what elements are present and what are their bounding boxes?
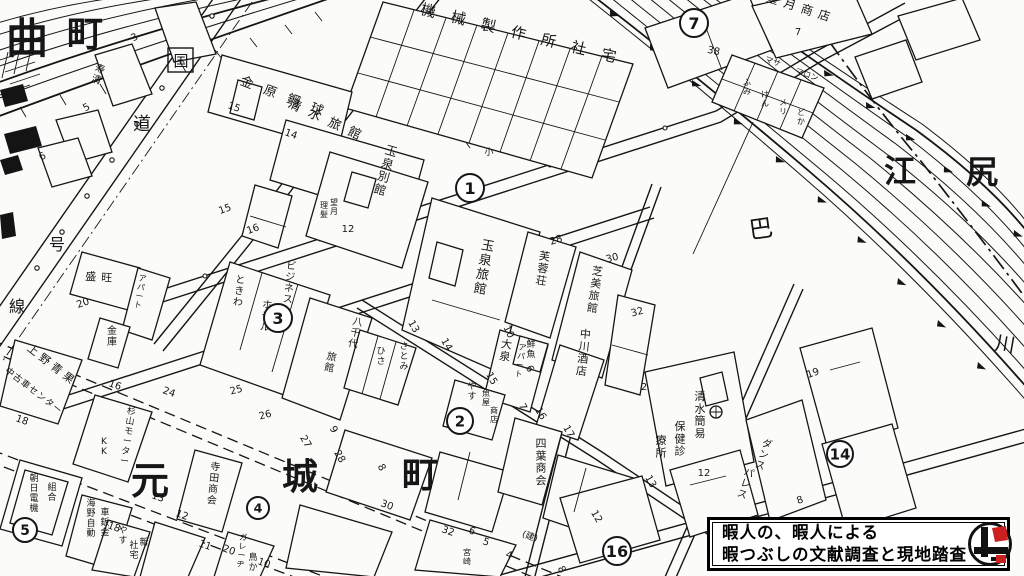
- circled-number-2: 2: [447, 408, 473, 434]
- map-label: メリ: [779, 98, 787, 116]
- map-canvas: 曲町江尻元城町巴川国道号線機械製作所社宅金原鋼球清水旅館寿清望月理髪玉泉別館玉泉…: [0, 0, 1024, 576]
- building-outline: [95, 44, 152, 106]
- map-label: 理髪: [320, 201, 328, 219]
- map-label: けん: [761, 90, 769, 108]
- road-label-gou: 号: [49, 235, 65, 254]
- circled-number-1: 1: [456, 174, 484, 202]
- svg-text:14: 14: [830, 445, 851, 463]
- circled-number-4: 4: [247, 497, 269, 519]
- lot-number: 27: [297, 433, 313, 450]
- map-label: ひさ: [376, 346, 385, 367]
- site-logo-icon: [967, 521, 1013, 567]
- map-label: 魚屋: [482, 388, 490, 407]
- lot-number: 18: [14, 413, 30, 428]
- map-label: 社宅: [129, 539, 138, 561]
- lot-number: 30: [605, 252, 620, 266]
- building-outline: [286, 505, 392, 576]
- lot-number: 9: [327, 424, 340, 435]
- river-label-kawa: 川: [993, 331, 1017, 358]
- road-label-koku: 国: [173, 52, 188, 70]
- svg-text:4: 4: [254, 501, 263, 516]
- map-label: さとみ: [399, 341, 408, 372]
- circled-number-3: 3: [264, 304, 292, 332]
- district-label-ejiri-e: 江: [884, 152, 916, 190]
- circled-number-5: 5: [13, 518, 37, 542]
- building-outline: [822, 424, 916, 530]
- district-label-magari-machi: 町: [67, 14, 103, 55]
- lot-number: 25: [229, 384, 244, 398]
- svg-text:3: 3: [272, 309, 283, 328]
- svg-text:7: 7: [688, 14, 699, 33]
- label-yotsuba-shoukai: 四葉商会: [536, 437, 547, 487]
- banner-line1: 暇人の、暇人による: [722, 522, 967, 544]
- map-label: 商店: [490, 405, 498, 424]
- map-label: 鮮魚: [526, 338, 535, 360]
- lot-number: 15: [217, 202, 233, 217]
- lot-number: 12: [698, 468, 711, 479]
- banner-line2: 暇つぶしの文献調査と現地踏査: [722, 544, 967, 566]
- label-shimizu-clinic-2: 保健診: [675, 419, 686, 458]
- lot-number: 3: [129, 31, 140, 44]
- circled-number-7: 7: [680, 9, 708, 37]
- district-label-machi: 町: [402, 455, 438, 496]
- building-outline: [140, 522, 205, 576]
- lot-number: 2: [641, 382, 647, 393]
- map-label: 組合: [47, 481, 56, 503]
- clinic-symbol-icon: [710, 406, 722, 418]
- map-label: 小: [484, 147, 493, 158]
- building-outline: [242, 185, 292, 248]
- building-filled: [0, 212, 16, 239]
- road-label-sen: 線: [9, 297, 25, 316]
- building-filled: [0, 155, 23, 175]
- circled-number-16: 16: [603, 537, 631, 565]
- lot-number: 12: [342, 224, 355, 235]
- district-label-magari: 曲: [6, 14, 48, 63]
- svg-text:16: 16: [606, 542, 628, 561]
- lot-number: 8: [555, 564, 568, 575]
- district-label-shiro: 城: [282, 457, 318, 498]
- map-label: 宮崎: [463, 547, 471, 566]
- banner-text: 暇人の、暇人による 暇つぶしの文献調査と現地踏査: [722, 522, 967, 566]
- lot-number: 7: [795, 27, 801, 38]
- road-label-dou: 道: [133, 114, 151, 135]
- map-label: 鳥か: [248, 551, 257, 573]
- map-label: 盛旺: [85, 269, 118, 285]
- svg-text:2: 2: [455, 412, 465, 430]
- label-shimizu-clinic-1: 清水簡易: [695, 390, 706, 440]
- label-shimizu-clinic-3: 療所: [656, 433, 667, 459]
- lot-number: 24: [161, 385, 177, 400]
- watermark-banner: 暇人の、暇人による 暇つぶしの文献調査と現地踏査: [707, 517, 1010, 571]
- map-label: どか: [797, 108, 805, 126]
- svg-text:5: 5: [20, 523, 30, 539]
- map-label: 新: [139, 536, 148, 548]
- map-label: やす: [467, 381, 476, 402]
- map-label: 海野自動: [86, 497, 95, 539]
- scanned-map-screenshot: 曲町江尻元城町巴川国道号線機械製作所社宅金原鋼球清水旅館寿清望月理髪玉泉別館玉泉…: [0, 0, 1024, 576]
- map-label: 望月: [330, 197, 338, 216]
- svg-text:1: 1: [464, 179, 475, 198]
- building-filled: [0, 84, 28, 107]
- lot-number: 26: [258, 409, 273, 423]
- building-filled: [4, 126, 42, 154]
- map-label: 朝日電機: [29, 473, 38, 514]
- map-label: ふみ: [743, 78, 751, 96]
- district-label-ejiri-jiri: 尻: [966, 153, 998, 191]
- river-label-tomoe: 巴: [747, 214, 775, 245]
- circled-number-14: 14: [827, 441, 853, 467]
- map-label: 金庫: [107, 324, 117, 348]
